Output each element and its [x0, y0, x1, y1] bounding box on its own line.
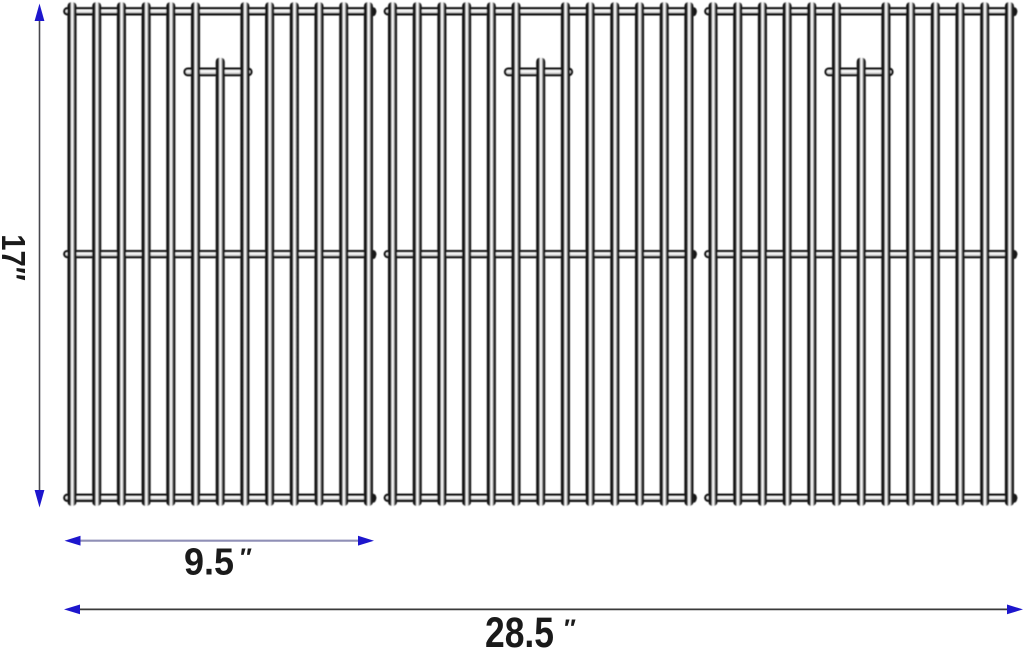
svg-text:″: ″ [240, 544, 252, 572]
svg-text:9.5: 9.5 [184, 542, 234, 584]
svg-text:17″: 17″ [0, 234, 32, 281]
svg-text:28.5: 28.5 [485, 610, 554, 648]
svg-text:″: ″ [564, 615, 576, 643]
